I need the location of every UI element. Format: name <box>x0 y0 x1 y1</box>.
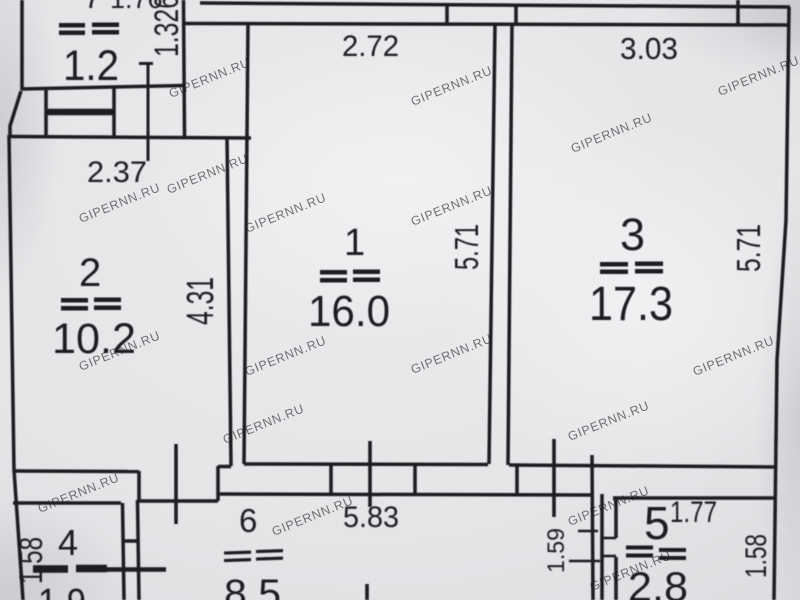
svg-text:6: 6 <box>239 502 257 539</box>
svg-text:4.31: 4.31 <box>180 277 222 325</box>
svg-text:4: 4 <box>58 522 78 563</box>
svg-text:3: 3 <box>620 209 645 260</box>
svg-text:1.326: 1.326 <box>148 0 186 57</box>
svg-text:1.58: 1.58 <box>13 537 49 584</box>
svg-text:3.03: 3.03 <box>620 31 678 66</box>
svg-text:1.58: 1.58 <box>740 534 773 578</box>
svg-text:5.71: 5.71 <box>448 224 485 270</box>
svg-text:2.8: 2.8 <box>628 563 688 600</box>
svg-text:8.5: 8.5 <box>224 572 281 600</box>
svg-text:1.77: 1.77 <box>670 496 717 529</box>
svg-text:1: 1 <box>344 222 365 264</box>
svg-text:10.2: 10.2 <box>52 315 136 363</box>
svg-text:1.2: 1.2 <box>63 42 119 90</box>
svg-text:5.83: 5.83 <box>343 501 399 534</box>
svg-text:5: 5 <box>644 497 670 549</box>
svg-text:7: 7 <box>84 0 101 15</box>
svg-text:1.9: 1.9 <box>38 582 86 600</box>
svg-text:17.3: 17.3 <box>589 278 673 331</box>
svg-text:2.72: 2.72 <box>342 30 399 63</box>
svg-text:1.59: 1.59 <box>543 528 570 573</box>
svg-text:5.71: 5.71 <box>730 224 767 272</box>
svg-text:2.37: 2.37 <box>87 156 147 189</box>
svg-text:16.0: 16.0 <box>308 287 390 336</box>
svg-text:2: 2 <box>79 251 101 295</box>
